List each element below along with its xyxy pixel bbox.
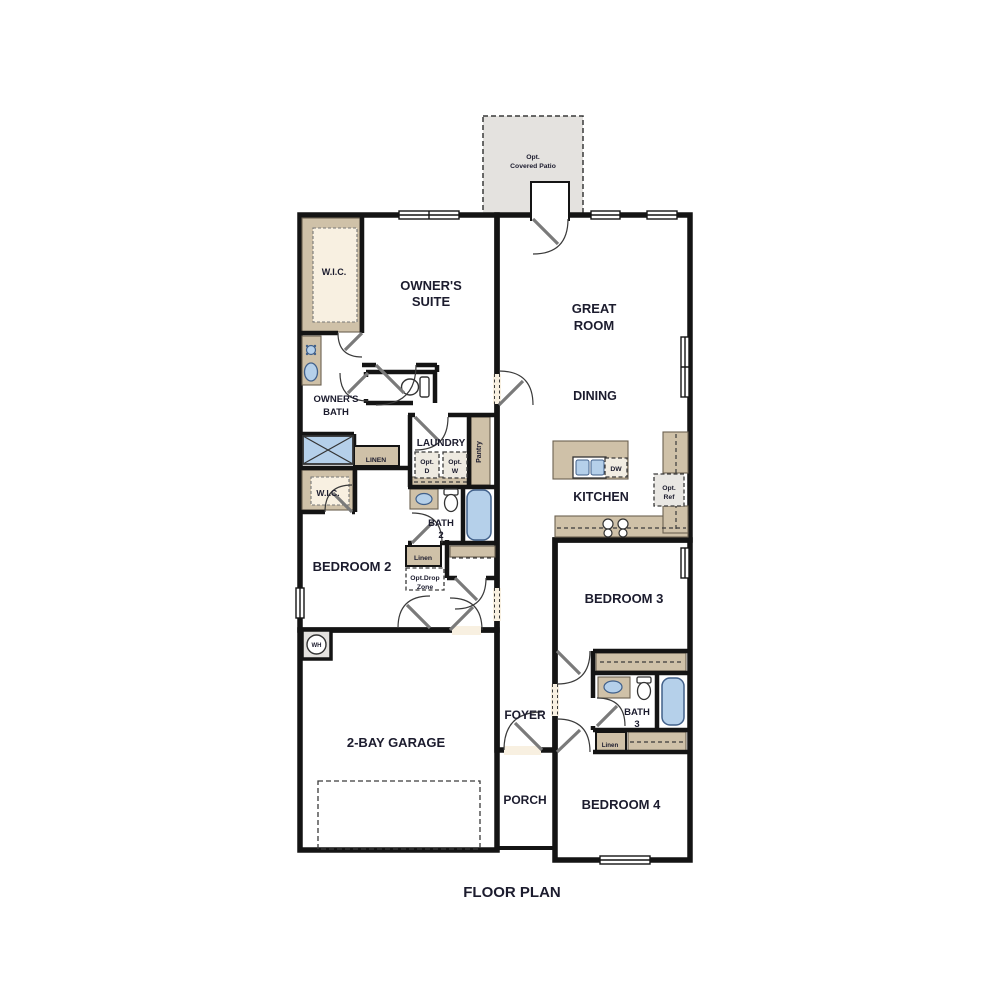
bath3-tub-icon: [662, 678, 684, 725]
bath2-label-2: 2: [438, 530, 443, 541]
owners-bath-sink-icon: [305, 363, 318, 381]
page-title: FLOOR PLAN: [463, 884, 561, 901]
opt-d-label-1: Opt.: [420, 459, 434, 466]
dining-label: DINING: [573, 389, 617, 403]
linen-hall-label: Linen: [414, 555, 432, 562]
opt-ref-label-1: Opt.: [662, 485, 676, 492]
floor-plan-page: Opt. Covered Patio: [0, 0, 1000, 1000]
dw-label: DW: [610, 466, 622, 473]
shower-head-icon: [307, 346, 316, 355]
wic-bed2-label: W.I.C.: [316, 488, 339, 498]
pantry-label: Pantry: [476, 441, 483, 463]
opt-w-label-2: W: [452, 468, 459, 475]
garage-door-opening: [452, 626, 481, 635]
cased-opening-ticks: [495, 374, 558, 716]
owners-suite-label-2: SUITE: [412, 294, 451, 309]
drop-zone-label-2: Zone: [417, 584, 433, 591]
stove-burner-icon: [603, 519, 613, 529]
patio-label-line2: Covered Patio: [510, 163, 556, 170]
bedroom4-label: BEDROOM 4: [582, 797, 662, 812]
owners-suite-label-1: OWNER'S: [400, 278, 462, 293]
coat-closet-shelf: [450, 546, 495, 557]
owners-bath-label-1: OWNER'S: [313, 394, 358, 405]
shower-spray-dot: [306, 353, 308, 355]
wic-owner-label: W.I.C.: [322, 267, 347, 277]
patio-label-line1: Opt.: [526, 154, 540, 161]
opt-d-label-2: D: [425, 468, 430, 475]
bath3-label-1: BATH: [624, 707, 650, 718]
bedroom3-label: BEDROOM 3: [585, 591, 664, 606]
water-heater-label: WH: [312, 643, 322, 649]
kitchen-label: KITCHEN: [573, 490, 629, 504]
shower-spray-dot: [306, 345, 308, 347]
dining-hall-opening: [493, 374, 501, 404]
foyer-hall-opening: [551, 684, 559, 716]
island-sink-bowl-left: [576, 460, 589, 475]
laundry-label: LAUNDRY: [417, 438, 466, 449]
drop-zone-label-1: Opt.Drop: [410, 575, 439, 582]
great-room-label-1: GREAT: [572, 301, 617, 316]
opt-w-label-1: Opt.: [448, 459, 462, 466]
linen-owner-label: LINEN: [366, 457, 386, 464]
great-room-label-2: ROOM: [574, 318, 614, 333]
shower-spray-dot: [314, 353, 316, 355]
bath2-tub-icon: [467, 490, 491, 540]
bedroom2-label: BEDROOM 2: [313, 559, 392, 574]
front-door-opening: [504, 746, 541, 755]
garage-label: 2-BAY GARAGE: [347, 735, 446, 750]
foyer-label: FOYER: [504, 708, 546, 722]
bath3-sink-icon: [604, 681, 622, 693]
stove-burner-icon: [618, 519, 628, 529]
bath2-toilet-bowl-icon: [445, 495, 458, 512]
shower-spray-dot: [314, 345, 316, 347]
bath2-sink-icon: [416, 494, 432, 505]
kitchen-counter-right-upper: [663, 432, 688, 473]
opt-ref-label-2: Ref: [664, 494, 676, 501]
stove-burner-icon: [604, 529, 612, 537]
bedroom4-closet: [628, 732, 686, 752]
stove-burner-icon: [619, 529, 627, 537]
floor-plan-drawing: Opt. Covered Patio: [0, 0, 1000, 1000]
bath3-label-2: 3: [634, 719, 639, 730]
island-sink-bowl-right: [591, 460, 604, 475]
bath3-toilet-bowl-icon: [638, 683, 651, 700]
garage-door-dashed: [318, 781, 480, 849]
porch-label: PORCH: [503, 793, 546, 807]
owners-toilet-tank-icon: [420, 377, 429, 397]
patio-door-landing: [531, 182, 569, 221]
linen-bed4-label: Linen: [602, 742, 619, 749]
bath2-label-1: BATH: [428, 518, 454, 529]
owners-bath-label-2: BATH: [323, 407, 349, 418]
